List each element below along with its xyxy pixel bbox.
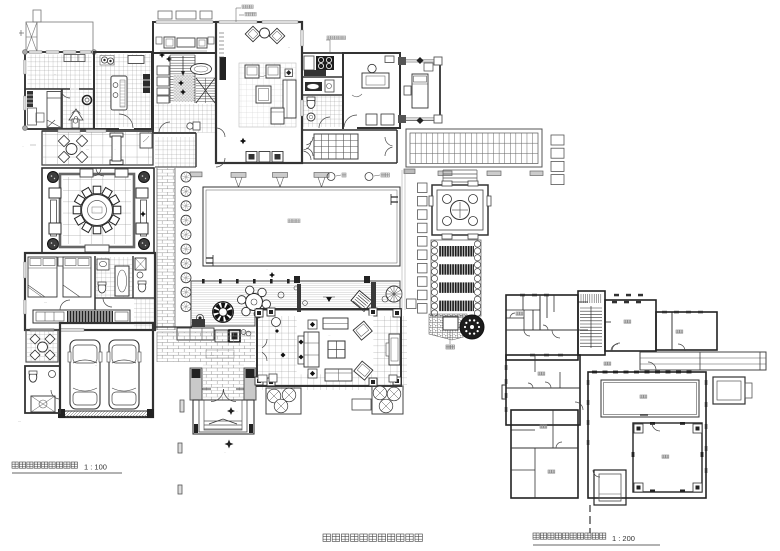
svg-text:..: .. [54,71,56,76]
svg-text:..: .. [236,409,238,413]
svg-text:....: .... [210,353,214,357]
svg-text:...: ... [44,300,47,304]
svg-text:...: ... [86,147,89,151]
svg-text:..: .. [95,363,97,367]
svg-text:..: .. [224,450,226,454]
svg-text:..: .. [114,147,116,151]
svg-text:..: .. [140,219,142,223]
svg-text:..: .. [286,355,288,359]
svg-text:1 : 200: 1 : 200 [612,534,635,543]
svg-text:..: .. [22,144,24,148]
svg-text:..: .. [94,209,96,213]
svg-text:1 : 100: 1 : 100 [84,463,107,472]
svg-text:..: .. [266,267,268,271]
svg-text:...: ... [328,333,331,337]
svg-text:...: ... [18,419,21,423]
svg-text:..: .. [288,44,290,49]
